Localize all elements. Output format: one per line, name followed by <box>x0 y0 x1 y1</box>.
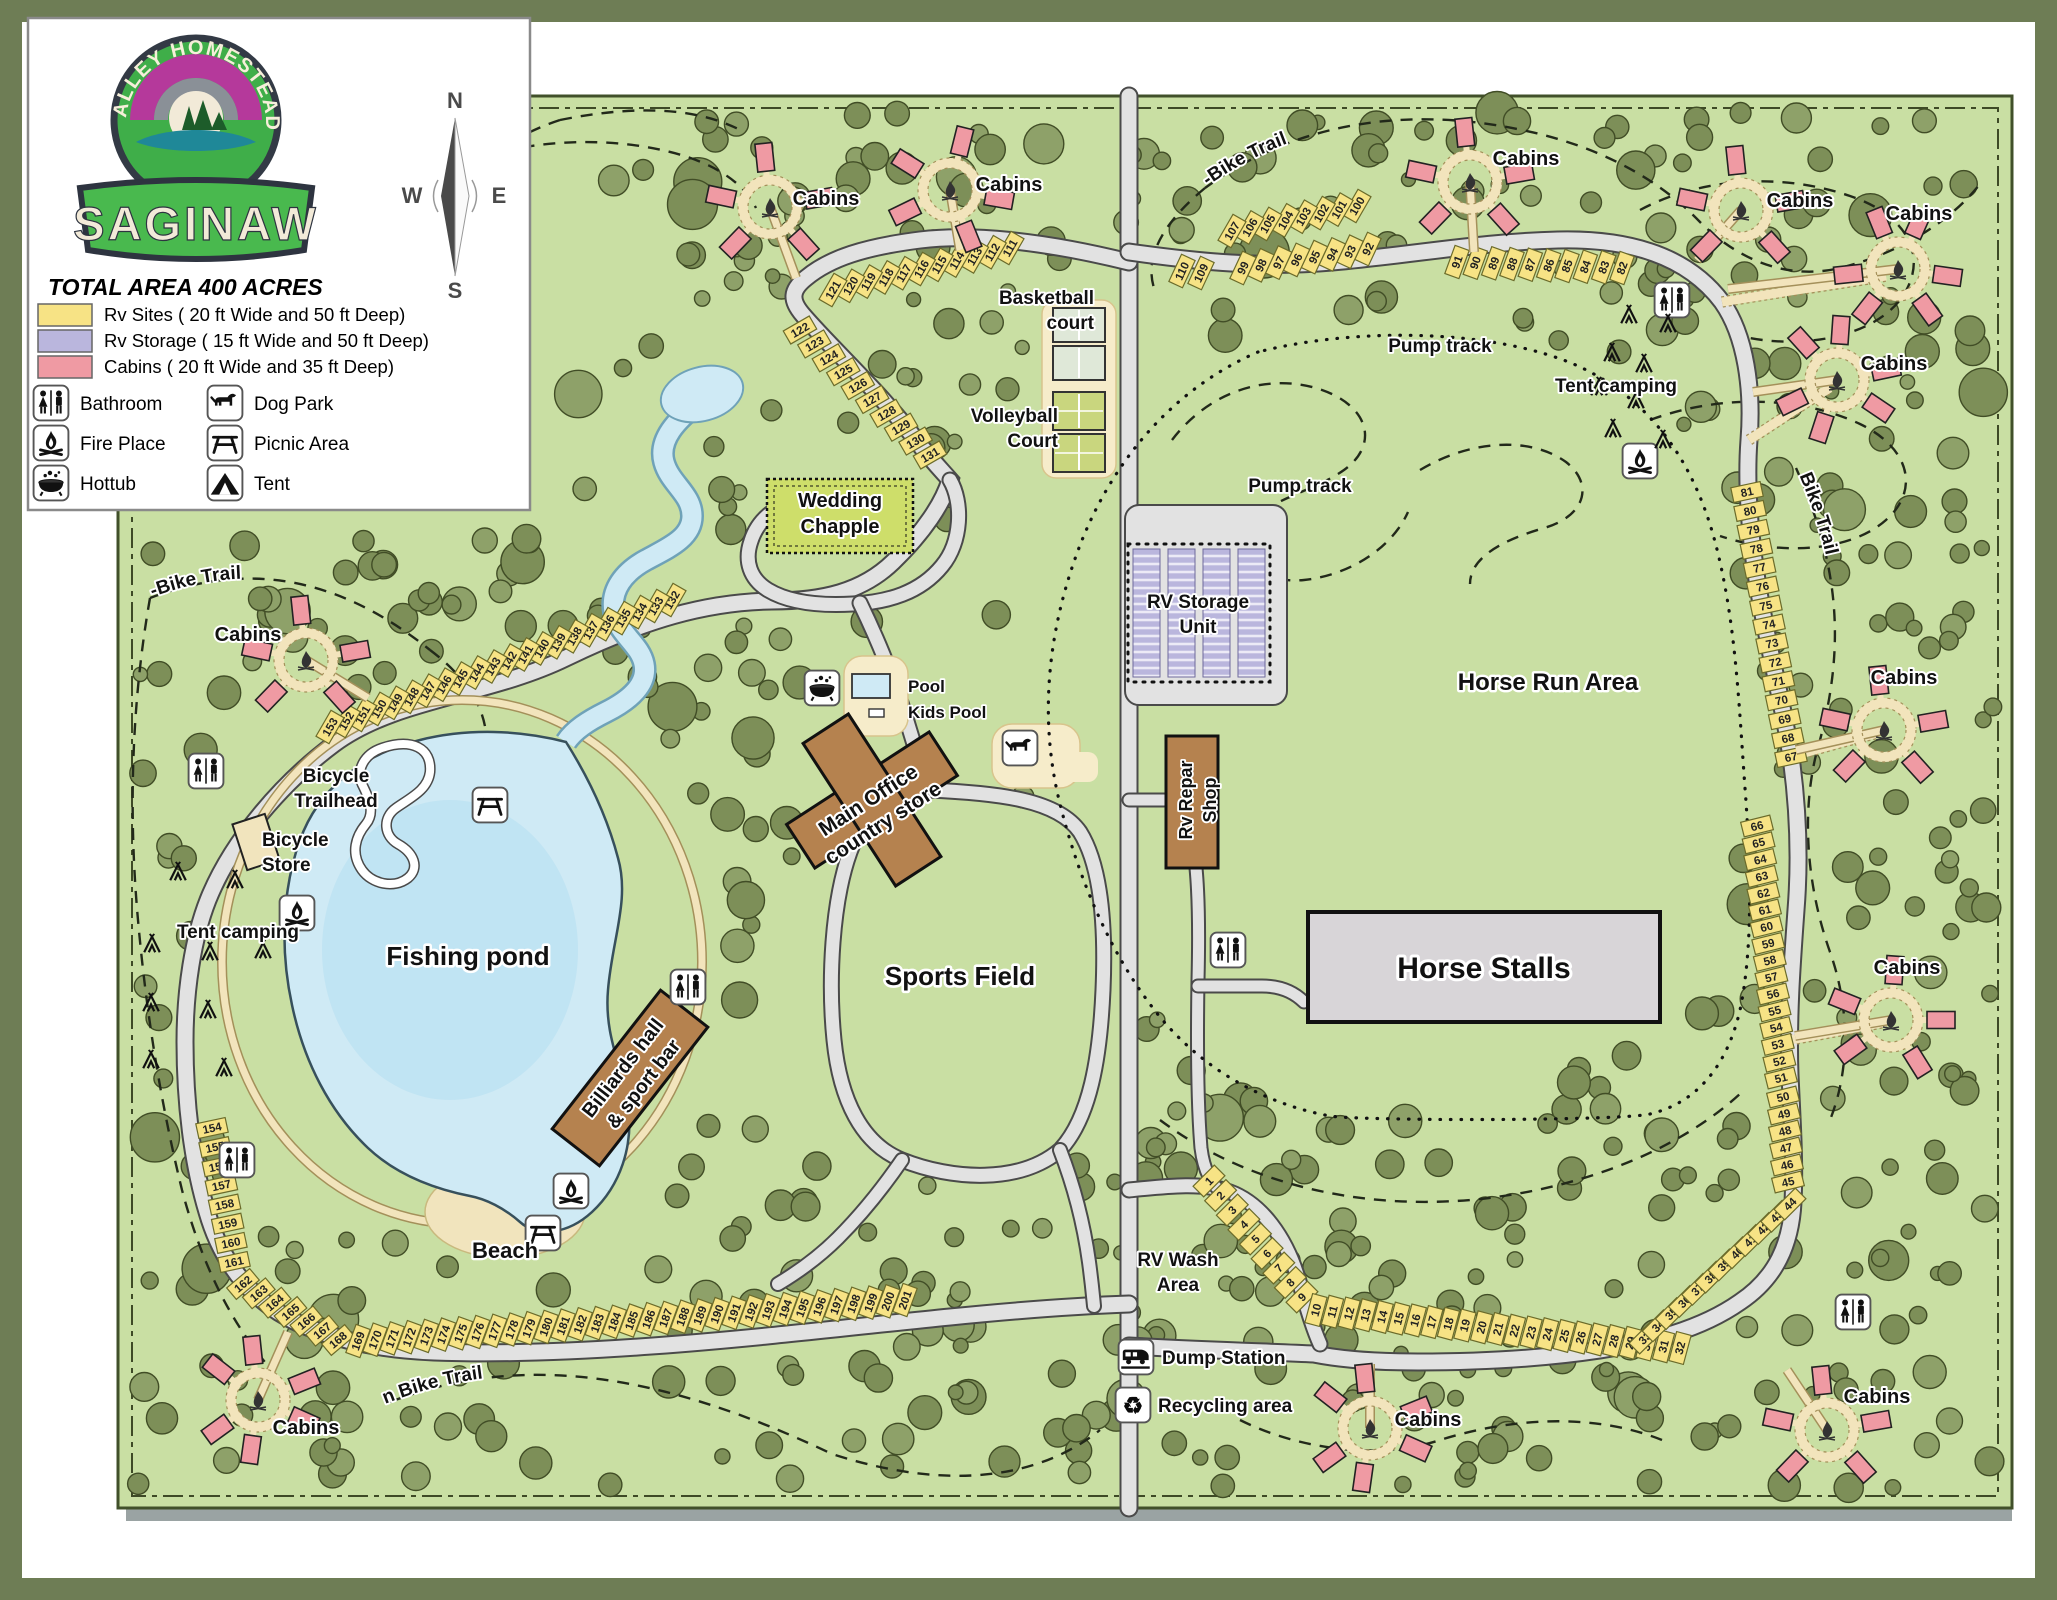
tree <box>382 1230 408 1256</box>
tree <box>505 611 536 642</box>
tree <box>639 334 663 358</box>
tree <box>1211 298 1235 322</box>
logo-banner-text: SAGINAW <box>73 197 319 250</box>
fire-icon <box>554 1174 589 1209</box>
tree <box>1870 848 1887 865</box>
cabin <box>1726 145 1746 175</box>
tree <box>1303 1255 1326 1278</box>
tree <box>864 1364 892 1392</box>
tree <box>1287 110 1318 141</box>
tree <box>1201 126 1224 149</box>
tree <box>1736 1316 1757 1337</box>
tree <box>1538 1114 1557 1133</box>
tree <box>1326 1242 1351 1267</box>
tree <box>677 243 700 266</box>
tree <box>1637 1470 1661 1494</box>
horse-run-label: Horse Run Area <box>1458 669 1639 696</box>
tree <box>1063 1415 1090 1442</box>
tree <box>1581 192 1602 213</box>
tree <box>599 165 630 196</box>
cabins-label: Cabins <box>215 624 282 646</box>
tree <box>724 272 743 291</box>
bathroom-icon <box>1655 283 1690 318</box>
tree <box>1914 1433 1939 1458</box>
tree <box>715 1449 730 1464</box>
tree <box>1937 437 1969 469</box>
tree <box>1982 985 1998 1001</box>
tree <box>1687 124 1713 150</box>
tree <box>1173 187 1201 215</box>
bathroom-icon <box>189 754 224 789</box>
tree <box>1389 1104 1422 1137</box>
tree <box>1706 1185 1723 1202</box>
cabins-label: Cabins <box>1767 190 1834 212</box>
picnic-icon <box>473 788 508 823</box>
tree <box>776 1465 803 1492</box>
legend-amenity-label: Hottub <box>80 474 136 495</box>
legend-row: Cabins ( 20 ft Wide and 35 ft Deep) <box>38 356 394 378</box>
legend-swatch <box>38 304 92 326</box>
tree <box>1919 637 1941 659</box>
tree <box>1033 1219 1052 1238</box>
legend-panel: VALLEY HOMESTEAD SAGINAW N S W E TOTAL A… <box>23 0 530 510</box>
cabins-label: Cabins <box>976 174 1043 196</box>
cabin <box>1455 117 1475 147</box>
tree <box>783 848 800 865</box>
tree <box>1605 1280 1623 1298</box>
cabin <box>1355 1363 1375 1393</box>
cabins-label: Cabins <box>1874 957 1941 979</box>
tree <box>1677 417 1691 431</box>
cabins-label: Cabins <box>1886 203 1953 225</box>
tree <box>141 1272 158 1289</box>
tree <box>1457 1441 1479 1463</box>
tree <box>765 269 779 283</box>
tree <box>1943 924 1959 940</box>
legend-amenity-label: Fire Place <box>80 434 166 455</box>
tree <box>402 1462 431 1491</box>
tree <box>704 437 724 457</box>
tree <box>1334 296 1363 325</box>
tree <box>1984 698 2002 716</box>
tree <box>908 1396 942 1430</box>
tree <box>695 110 719 134</box>
tree <box>1351 1236 1370 1255</box>
tree <box>324 1438 340 1454</box>
tree <box>1680 1167 1697 1184</box>
tree <box>1600 1363 1614 1377</box>
legend-amenity-label: Dog Park <box>254 394 334 415</box>
tree <box>791 1192 820 1221</box>
tree <box>286 1242 303 1259</box>
tree <box>1376 1150 1404 1178</box>
rv-storage-strip <box>1168 549 1195 677</box>
tree <box>1940 631 1959 650</box>
fire-icon <box>34 426 69 461</box>
tree <box>885 101 910 126</box>
tree <box>1686 997 1719 1030</box>
tree <box>725 631 747 653</box>
tree <box>1907 392 1924 409</box>
cabins-label: Cabins <box>1395 1409 1462 1431</box>
bathroom-icon <box>220 1143 255 1178</box>
tree <box>614 360 631 377</box>
legend-swatch <box>38 356 92 378</box>
tree <box>1925 1140 1945 1160</box>
tree <box>1674 154 1692 172</box>
cabins-label: Cabins <box>793 188 860 210</box>
tree <box>338 1287 366 1315</box>
tree <box>1415 121 1434 140</box>
tree <box>1808 147 1832 171</box>
dump-station-label: Dump Station <box>1162 1348 1286 1369</box>
tree <box>661 729 680 748</box>
tree <box>1847 1262 1863 1278</box>
tree <box>842 1429 865 1452</box>
tree <box>975 134 1005 164</box>
cabin <box>1353 1462 1374 1492</box>
tree <box>688 783 709 804</box>
tree <box>1942 489 1967 514</box>
tree <box>437 1256 459 1278</box>
tree <box>742 1116 768 1142</box>
tree <box>1972 1195 1999 1222</box>
tree <box>1885 542 1912 569</box>
tree <box>1147 1138 1166 1157</box>
tree <box>1765 458 1794 487</box>
tree <box>1612 1041 1641 1070</box>
tree <box>171 846 196 871</box>
tent-icon <box>208 466 243 501</box>
tree <box>1884 790 1909 815</box>
tree <box>1847 906 1870 929</box>
tree <box>1924 177 1942 195</box>
tree <box>476 1421 507 1452</box>
tree <box>1395 1476 1411 1492</box>
tree <box>645 1256 672 1283</box>
sports-field-label: Sports Field <box>885 961 1035 991</box>
tree <box>1905 897 1924 916</box>
tree <box>1211 1474 1234 1497</box>
tree <box>1880 1067 1908 1095</box>
tree <box>1885 1480 1901 1496</box>
bathroom-icon <box>1211 933 1246 968</box>
tree <box>711 798 745 832</box>
tree <box>982 601 1010 629</box>
bathroom-icon <box>1836 1295 1871 1330</box>
tree <box>1882 1159 1898 1175</box>
tree <box>1950 544 1969 563</box>
tree <box>141 542 165 566</box>
tree <box>980 311 1003 334</box>
tree <box>868 351 896 379</box>
tree <box>1604 1137 1622 1155</box>
tent-camping-right-label: Tent camping <box>1555 376 1677 397</box>
tree <box>1975 1447 2004 1476</box>
cabin <box>755 142 775 172</box>
tree <box>1594 127 1615 148</box>
legend-title: TOTAL AREA 400 ACRES <box>48 274 323 300</box>
hottub-icon <box>805 671 840 706</box>
tent-camping-left-label: Tent camping <box>177 922 299 943</box>
tree <box>555 370 602 417</box>
legend-amenity-label: Tent <box>254 474 291 495</box>
tree <box>316 1371 349 1404</box>
tree <box>759 680 778 699</box>
tree <box>783 1365 804 1386</box>
tree <box>859 1223 877 1241</box>
tree <box>743 817 768 842</box>
tree <box>400 1406 421 1427</box>
tree <box>249 587 272 610</box>
tree <box>633 160 654 181</box>
tree <box>1691 1423 1718 1450</box>
tree <box>1230 1277 1254 1301</box>
tree <box>573 477 596 500</box>
tree <box>1369 144 1388 163</box>
tree <box>959 374 980 395</box>
tree <box>803 1152 831 1180</box>
tree <box>721 929 754 962</box>
rv-storage-strip <box>1133 549 1160 677</box>
tree <box>1872 118 1889 135</box>
tree <box>1468 1269 1483 1284</box>
cabins-label: Cabins <box>1861 353 1928 375</box>
tree <box>214 1448 240 1474</box>
dog-icon <box>208 386 243 421</box>
tree <box>472 528 497 553</box>
tree <box>258 1226 278 1246</box>
tree <box>1913 109 1937 133</box>
tree <box>1974 541 1989 556</box>
tree <box>1950 811 1966 827</box>
tree <box>1507 1252 1522 1267</box>
compass-east: E <box>492 183 507 208</box>
tree <box>1527 1446 1552 1471</box>
cabin <box>241 1434 262 1464</box>
bathroom-icon <box>34 386 69 421</box>
tree <box>1558 1066 1591 1099</box>
tree <box>1959 368 2007 416</box>
tree <box>275 1259 300 1284</box>
horse-stalls-label: Horse Stalls <box>1397 952 1570 985</box>
tree <box>1521 185 1542 206</box>
tree <box>489 580 512 603</box>
tree <box>1730 103 1751 124</box>
tree <box>1367 292 1386 311</box>
tree <box>154 1069 173 1088</box>
tree <box>1872 1249 1889 1266</box>
tree <box>1024 124 1064 164</box>
cabins-label: Cabins <box>1493 148 1560 170</box>
pump-track-2-label: Pump track <box>1248 476 1352 497</box>
tree <box>1633 1383 1661 1411</box>
tree <box>1638 1251 1664 1277</box>
tree <box>1215 1445 1239 1469</box>
tree <box>1938 1262 1961 1285</box>
compass-north: N <box>447 88 463 113</box>
cabin <box>1831 316 1850 345</box>
tree <box>709 477 735 503</box>
kids-pool <box>869 709 884 717</box>
tree <box>520 1447 552 1479</box>
tree <box>1906 620 1922 636</box>
tree <box>1856 871 1890 905</box>
tree <box>1900 375 1914 389</box>
tree <box>130 1113 179 1162</box>
tree <box>948 1385 963 1400</box>
kids-pool-label: Kids Pool <box>908 703 986 722</box>
tree <box>756 1432 783 1459</box>
tree <box>372 552 397 577</box>
tree <box>950 1282 970 1302</box>
bathroom-icon <box>671 970 706 1005</box>
tree <box>1945 511 1966 532</box>
tree <box>230 531 259 560</box>
legend-area-label: Cabins ( 20 ft Wide and 35 ft Deep) <box>104 356 394 377</box>
rv-icon <box>1119 1340 1154 1375</box>
tree <box>1901 1224 1916 1239</box>
tree <box>996 378 1019 401</box>
tree <box>1755 1380 1779 1404</box>
rv-storage-strip <box>1203 549 1230 677</box>
tree <box>1942 851 1959 868</box>
tree <box>695 291 710 306</box>
tree <box>1971 798 1996 823</box>
tree <box>418 583 439 604</box>
tree <box>536 1273 570 1307</box>
tree <box>665 1184 689 1208</box>
legend-area-label: Rv Sites ( 20 ft Wide and 50 ft Deep) <box>104 304 405 325</box>
tree <box>1048 1360 1075 1387</box>
tree <box>945 1228 964 1247</box>
tree <box>1718 1415 1741 1438</box>
tree <box>1717 1129 1738 1150</box>
tree <box>1326 1116 1355 1145</box>
tree <box>1448 1390 1464 1406</box>
tree <box>1153 152 1170 169</box>
tree <box>907 293 921 307</box>
tree <box>727 882 764 919</box>
tree <box>207 676 240 709</box>
dog-park-pad-ext <box>1062 752 1098 782</box>
tree <box>1549 331 1568 350</box>
tree <box>947 434 962 449</box>
tree <box>1960 879 1978 897</box>
tree <box>1162 1431 1186 1455</box>
cabins-label: Cabins <box>1844 1386 1911 1408</box>
cabin <box>1812 1365 1832 1395</box>
hottub-icon <box>34 466 69 501</box>
tree <box>1505 1224 1525 1244</box>
tree <box>599 1473 622 1496</box>
tree <box>1930 827 1952 849</box>
tree <box>1937 1408 1963 1434</box>
tree <box>844 103 870 129</box>
dog-icon <box>1003 731 1038 766</box>
tree <box>1015 340 1029 354</box>
tree <box>1244 1105 1276 1137</box>
tree <box>1369 1275 1393 1299</box>
tree <box>881 1455 904 1478</box>
tree <box>1193 1450 1208 1465</box>
tree <box>1208 319 1242 353</box>
tree <box>1513 308 1533 328</box>
tree <box>1927 1163 1959 1195</box>
tree <box>1068 1461 1090 1483</box>
legend-swatch <box>38 330 92 352</box>
pool-label: Pool <box>908 677 945 696</box>
compass-west: W <box>402 183 423 208</box>
legend-amenity-label: Picnic Area <box>254 434 349 455</box>
tree <box>934 309 964 339</box>
tree <box>373 662 396 685</box>
cabin <box>1932 266 1962 287</box>
tree <box>897 368 914 385</box>
tree <box>1460 1462 1477 1479</box>
cabin <box>291 595 311 625</box>
fishing-pond-label: Fishing pond <box>386 941 549 971</box>
tree <box>697 1114 720 1137</box>
tree <box>1168 1102 1186 1120</box>
tree <box>769 628 791 650</box>
fire-icon <box>1623 444 1658 479</box>
tree <box>1003 1220 1020 1237</box>
tree <box>128 1473 149 1494</box>
recycling-label: Recycling area <box>1158 1396 1293 1417</box>
tree <box>1475 1197 1508 1230</box>
tree <box>1972 893 2001 922</box>
recycle-icon <box>1116 1388 1151 1423</box>
compass-south: S <box>448 278 463 303</box>
tree <box>1782 1315 1813 1346</box>
tree <box>1824 560 1850 586</box>
tree <box>722 982 758 1018</box>
tree <box>1478 1434 1508 1464</box>
tree <box>838 412 859 433</box>
campground-map-page: ♻ 11111211311411511611711811912012112212… <box>0 0 2057 1600</box>
tree <box>953 1338 968 1353</box>
cabin <box>1927 1012 1955 1029</box>
pump-track-1-label: Pump track <box>1388 336 1492 357</box>
tree <box>1590 1094 1620 1124</box>
tree <box>1895 496 1927 528</box>
pool <box>852 674 890 698</box>
tree <box>1909 1306 1926 1323</box>
cabin <box>1833 264 1863 284</box>
map-shadow <box>126 1508 2012 1521</box>
legend-amenity-label: Bathroom <box>80 394 162 415</box>
tree <box>442 595 461 614</box>
tree <box>1859 545 1878 564</box>
tree <box>1955 316 1985 346</box>
tree <box>435 1413 462 1440</box>
rv-storage-strip <box>1238 549 1265 677</box>
tree <box>894 1334 921 1361</box>
tree <box>1880 1315 1909 1344</box>
tree <box>1821 1086 1845 1110</box>
picnic-icon <box>208 426 243 461</box>
campground-map: ♻ 11111211311411511611711811912012112212… <box>0 0 2057 1600</box>
tree <box>1600 282 1622 304</box>
tree <box>1425 1149 1452 1176</box>
cabin <box>243 1335 263 1365</box>
tree <box>147 662 172 687</box>
tree <box>716 515 746 545</box>
beach-label: Beach <box>472 1238 538 1263</box>
tree <box>761 400 782 421</box>
tree <box>1913 1356 1946 1389</box>
